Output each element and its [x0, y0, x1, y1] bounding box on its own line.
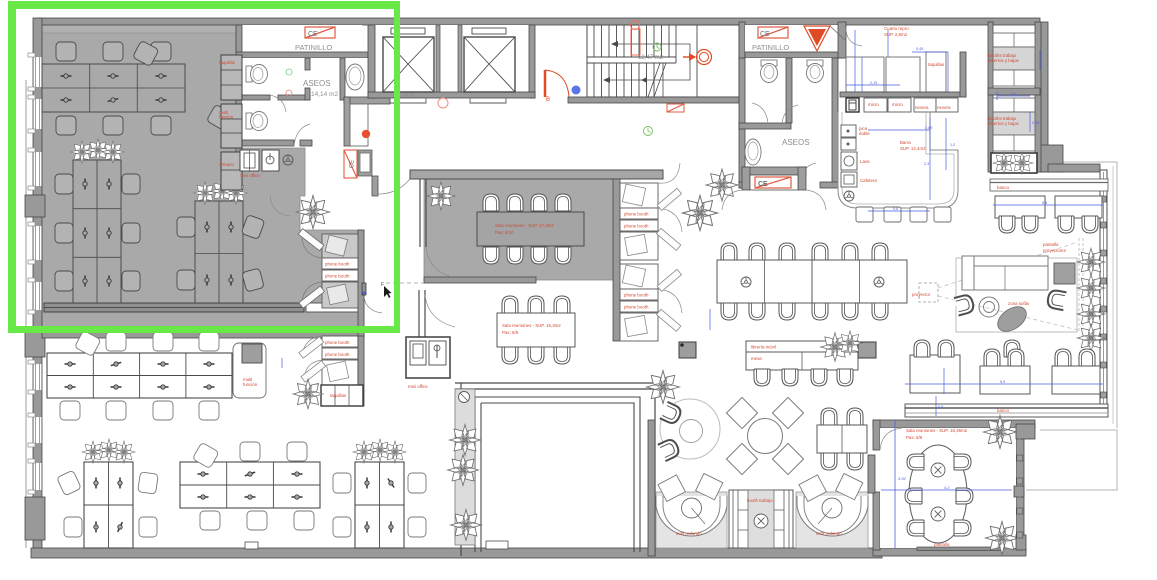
svg-text:0,45: 0,45: [916, 47, 923, 51]
svg-text:micro: micro: [892, 102, 903, 107]
svg-text:Pax: 6/8: Pax: 6/8: [906, 435, 923, 440]
svg-text:pantalla: pantalla: [1043, 242, 1059, 247]
svg-text:F: F: [381, 282, 384, 288]
svg-text:PATINILLO: PATINILLO: [295, 43, 332, 52]
svg-text:14,14 m2: 14,14 m2: [311, 91, 338, 98]
svg-text:librería móvil: librería móvil: [751, 345, 776, 350]
svg-text:phone booth: phone booth: [624, 293, 649, 298]
svg-text:phone booth: phone booth: [325, 340, 350, 345]
svg-text:taquillas: taquillas: [219, 60, 236, 65]
svg-text:phone booth: phone booth: [325, 262, 350, 267]
svg-text:1,5: 1,5: [1010, 92, 1015, 96]
svg-text:Barra: Barra: [900, 140, 911, 145]
svg-text:0,75: 0,75: [1032, 121, 1039, 125]
svg-text:nevera: nevera: [937, 105, 951, 110]
svg-text:1,2: 1,2: [950, 143, 955, 147]
svg-text:0,6: 0,6: [938, 405, 943, 409]
svg-text:Pax: 8/10: Pax: 8/10: [495, 230, 514, 235]
svg-text:PATINILLO: PATINILLO: [752, 43, 789, 52]
svg-text:taquillas: taquillas: [330, 393, 347, 398]
svg-text:Sala reuniones - SUP. 17,3m2: Sala reuniones - SUP. 17,3m2: [495, 223, 554, 228]
svg-text:SUP. 2,9m2: SUP. 2,9m2: [884, 32, 908, 37]
svg-text:mini office: mini office: [240, 173, 260, 178]
svg-text:proyectores: proyectores: [1043, 248, 1067, 253]
svg-text:2,3: 2,3: [924, 162, 929, 166]
svg-text:2,89: 2,89: [925, 126, 932, 130]
svg-text:B: B: [546, 97, 550, 103]
svg-text:mesa: mesa: [751, 356, 762, 361]
svg-text:phone booth: phone booth: [325, 274, 350, 279]
svg-text:banco: banco: [997, 408, 1010, 413]
svg-text:ASEOS: ASEOS: [782, 138, 810, 147]
svg-text:micro: micro: [868, 102, 879, 107]
svg-text:función: función: [243, 382, 258, 387]
svg-text:armario: armario: [219, 162, 234, 167]
svg-text:Sala reuniones - SUP. 18,45m2: Sala reuniones - SUP. 18,45m2: [906, 428, 968, 433]
svg-text:taquillas: taquillas: [928, 62, 945, 67]
svg-text:proyector: proyector: [912, 292, 931, 297]
svg-text:ASEOS: ASEOS: [303, 79, 331, 88]
svg-text:2,15: 2,15: [870, 81, 877, 85]
svg-text:nevera: nevera: [915, 105, 929, 110]
svg-text:CE: CE: [308, 31, 318, 38]
svg-text:5,9: 5,9: [1000, 380, 1005, 384]
svg-text:SUP. 12,4m2: SUP. 12,4m2: [900, 146, 926, 151]
svg-text:phone booth: phone booth: [624, 305, 649, 310]
svg-text:mini office: mini office: [408, 384, 428, 389]
svg-text:doble: doble: [859, 131, 870, 136]
svg-text:12,47 m2: 12,47 m2: [638, 55, 664, 61]
svg-text:Pax: 6/8: Pax: 6/8: [502, 330, 519, 335]
svg-text:5,5: 5,5: [1042, 201, 1047, 205]
svg-text:sofá redondo: sofá redondo: [816, 531, 842, 536]
svg-text:pantalla: pantalla: [934, 542, 950, 547]
svg-text:CE: CE: [760, 31, 770, 38]
svg-text:Cafetera: Cafetera: [860, 178, 877, 183]
svg-text:sofá redondo: sofá redondo: [676, 531, 702, 536]
svg-text:CE: CE: [350, 160, 356, 168]
svg-text:phone booth: phone booth: [624, 212, 649, 217]
svg-text:abiertos y bajos: abiertos y bajos: [988, 121, 1020, 126]
svg-text:zona sofás: zona sofás: [1008, 301, 1030, 306]
svg-text:banco: banco: [997, 185, 1010, 190]
svg-text:phone booth: phone booth: [325, 352, 350, 357]
svg-text:phone booth: phone booth: [624, 224, 649, 229]
svg-text:4,2: 4,2: [944, 485, 950, 490]
svg-text:Lava: Lava: [860, 159, 870, 164]
svg-text:Sala reuniones - SUP. 15,3m2: Sala reuniones - SUP. 15,3m2: [502, 323, 561, 328]
svg-text:CE: CE: [758, 181, 768, 188]
svg-text:función: función: [219, 115, 234, 120]
svg-text:3,92: 3,92: [898, 476, 907, 481]
svg-text:0,6: 0,6: [893, 207, 898, 211]
svg-text:abiertos y bajos: abiertos y bajos: [988, 58, 1020, 63]
svg-text:booth trabajo: booth trabajo: [747, 498, 773, 503]
